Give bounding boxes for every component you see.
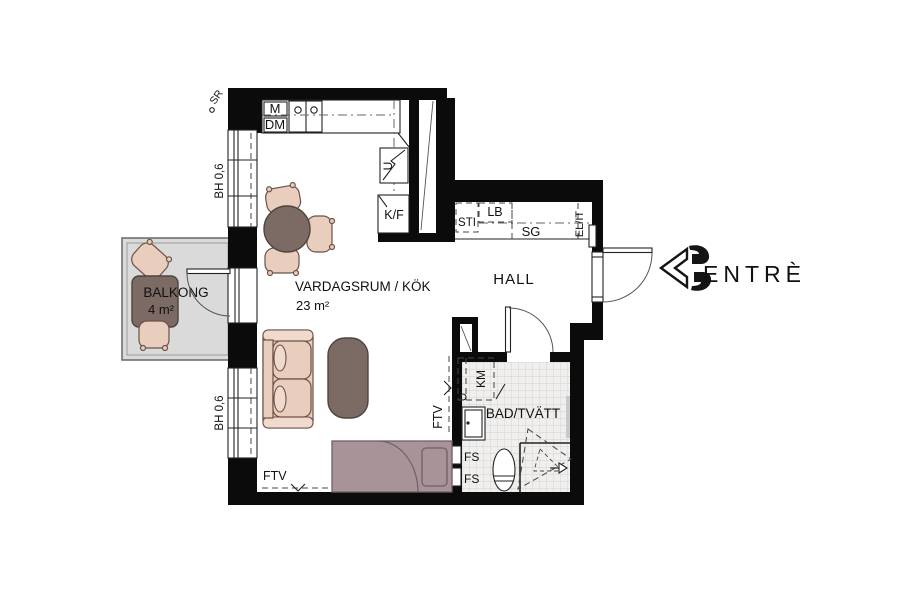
floor-plan: BALKONG 4 m² — [0, 0, 900, 600]
window-lower-sill-label: BH 0,6 — [214, 395, 226, 430]
el-it-panel — [589, 225, 596, 247]
living-room: VARDAGSRUM / KÖK 23 m² — [263, 279, 452, 492]
wall-right-jog — [570, 323, 603, 340]
niche-shaft-diagonal — [461, 326, 471, 351]
counter-corner — [398, 133, 409, 147]
smoke-detector: SR — [207, 88, 225, 113]
entrance-door — [592, 248, 652, 302]
wall-niche-left — [452, 317, 460, 362]
closet-sti-label: STI — [458, 217, 476, 229]
wall-kitchen-bottom — [378, 233, 455, 242]
balcony-area: 4 m² — [148, 302, 175, 317]
sr-detector-symbol — [210, 108, 215, 113]
balcony: BALKONG 4 m² — [122, 237, 232, 360]
kitchen: M DM U K/F — [262, 100, 409, 276]
wall-bath-top-left — [452, 352, 507, 362]
window-lower — [228, 368, 257, 458]
entrance-mark: ENTRÈ — [661, 245, 806, 291]
wall-top-right — [436, 180, 603, 202]
washing-machine-label: KM — [474, 370, 488, 388]
fs-upper-label: FS — [464, 450, 479, 464]
living-room-area: 23 m² — [296, 298, 330, 313]
hall-label: HALL — [493, 271, 535, 288]
sr-label: SR — [207, 88, 225, 107]
wall-bottom — [228, 492, 584, 505]
oven-label: U — [381, 162, 395, 171]
toilet — [493, 449, 515, 491]
balcony-label: BALKONG — [143, 285, 208, 300]
kitchen-sink — [289, 101, 322, 132]
bathroom-door — [506, 307, 554, 352]
floor-plan-canvas: BALKONG 4 m² — [0, 0, 900, 600]
ftv-outlet-wall: FTV — [431, 356, 451, 434]
closet-sg-label: SG — [522, 224, 541, 239]
living-room-label: VARDAGSRUM / KÖK — [295, 279, 431, 294]
bed — [332, 441, 452, 492]
dining-set — [264, 182, 335, 276]
wall-bath-top-right — [550, 352, 584, 362]
wall-shaft-right — [436, 98, 455, 242]
ftv-wall-label: FTV — [431, 405, 445, 429]
shower-wall-panel — [566, 396, 570, 438]
fs-hatch-lower — [452, 468, 461, 486]
dining-table — [264, 206, 310, 252]
wall-bath-right — [570, 340, 584, 505]
window-upper — [228, 130, 257, 227]
balcony-chair-bottom — [139, 321, 169, 351]
fs-lower-label: FS — [464, 472, 479, 486]
dining-chair-right — [307, 216, 335, 252]
wall-kitchen-right — [409, 98, 419, 242]
el-it-label: EL/IT — [574, 211, 586, 238]
fridge-freezer-label: K/F — [384, 208, 404, 222]
wall-left-pier-2 — [228, 323, 257, 368]
wall-niche-right — [472, 324, 478, 352]
ftv-outlet-floor: FTV — [262, 469, 332, 491]
fs-hatch-upper — [452, 446, 461, 464]
bath-sink — [462, 407, 485, 440]
bathroom-label: BAD/TVÄTT — [486, 406, 560, 421]
wall-left-pier-1 — [228, 227, 257, 268]
ftv-floor-label: FTV — [263, 469, 287, 483]
entrance-label: ENTRÈ — [703, 261, 806, 287]
hall-closets: STI LB SG EL/IT — [455, 203, 596, 247]
wall-top-left-corner — [228, 88, 262, 133]
shaft-diagonal — [421, 101, 433, 230]
microwave-label: M — [270, 101, 281, 116]
closet-lb-label: LB — [487, 205, 502, 219]
window-upper-sill-label: BH 0,6 — [214, 163, 226, 198]
sofa — [263, 330, 313, 428]
dishwasher-label: DM — [265, 117, 285, 132]
coffee-table — [328, 338, 368, 418]
